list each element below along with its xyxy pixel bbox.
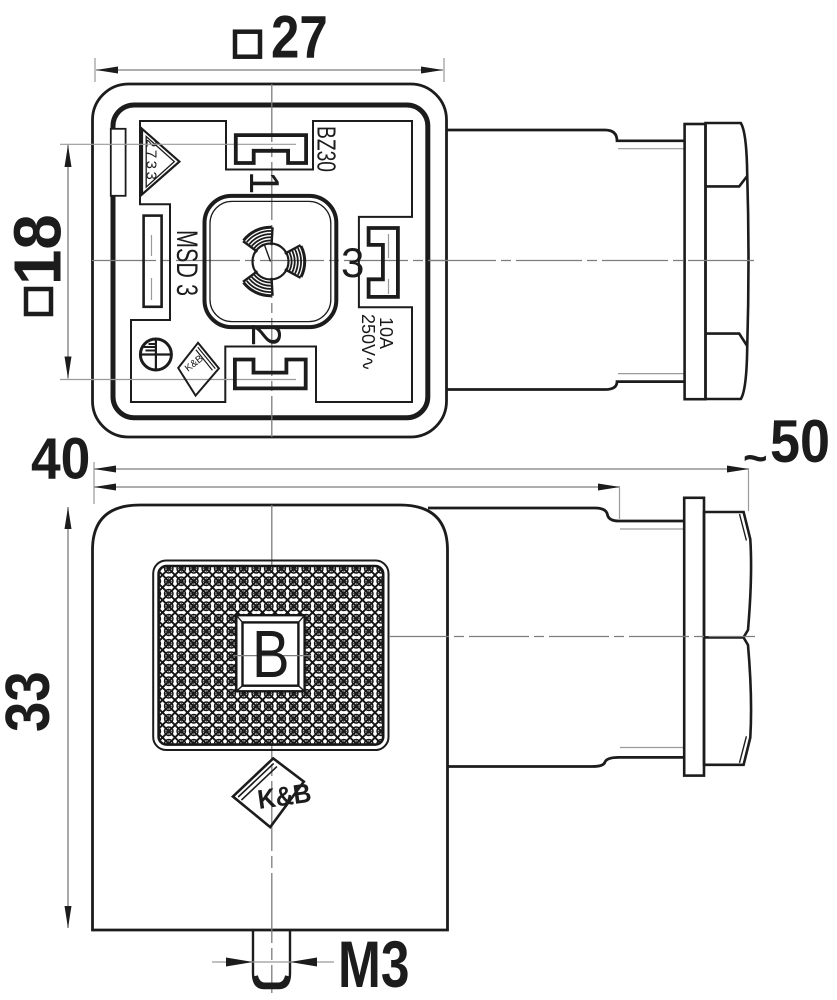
svg-text:3: 3 <box>341 239 364 286</box>
svg-text:2: 2 <box>243 323 290 346</box>
svg-text:~: ~ <box>743 434 768 481</box>
svg-text:10A: 10A <box>376 317 396 349</box>
svg-text:27: 27 <box>271 4 328 71</box>
svg-text:250V∿: 250V∿ <box>358 314 378 371</box>
svg-text:18: 18 <box>0 214 75 285</box>
svg-text:40: 40 <box>31 426 90 491</box>
svg-text:MSD 3: MSD 3 <box>170 230 204 296</box>
svg-text:33: 33 <box>0 671 63 732</box>
svg-text:B: B <box>252 617 290 692</box>
svg-text:50: 50 <box>770 408 830 475</box>
svg-text:2733: 2733 <box>143 139 160 182</box>
svg-text:M3: M3 <box>338 927 409 1000</box>
svg-text:1: 1 <box>241 171 288 194</box>
svg-text:BZ30: BZ30 <box>312 126 342 172</box>
